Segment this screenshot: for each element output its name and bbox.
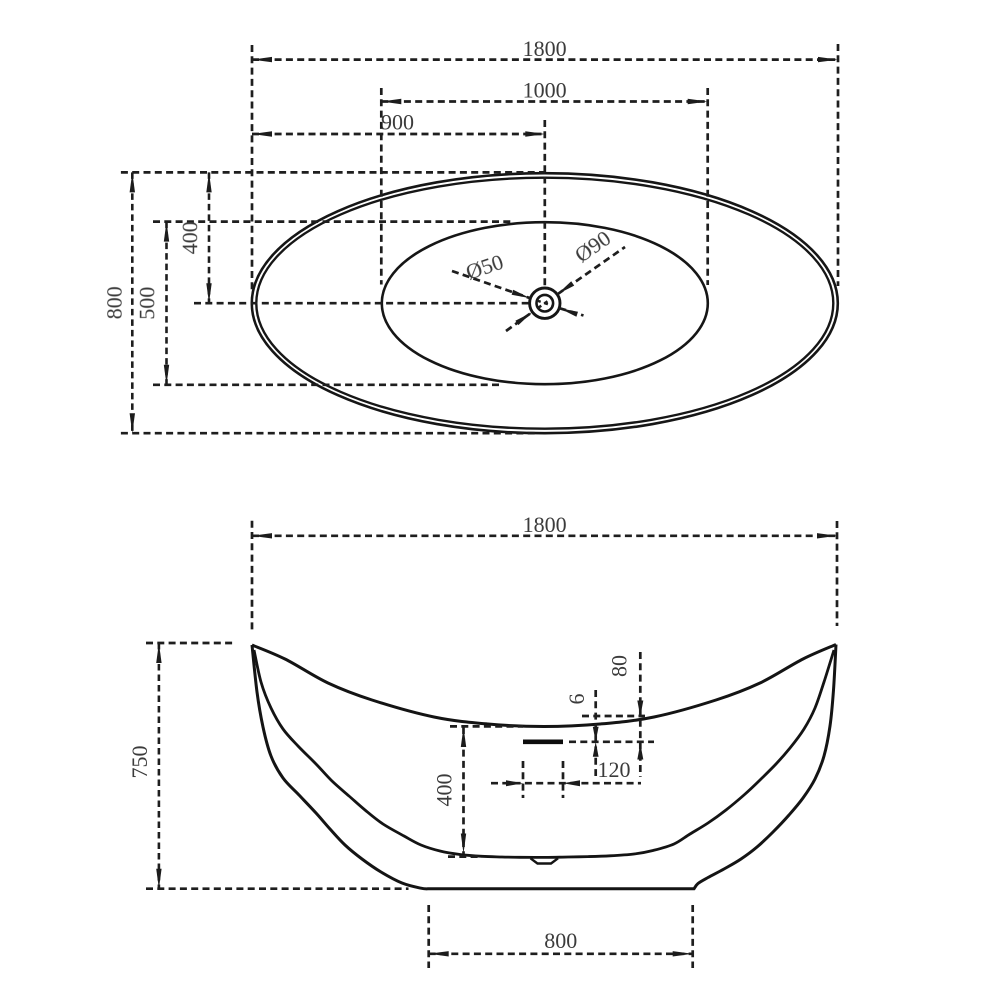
svg-text:800: 800 xyxy=(102,286,127,319)
svg-text:1000: 1000 xyxy=(523,78,567,103)
svg-text:750: 750 xyxy=(127,746,152,779)
svg-text:6: 6 xyxy=(564,694,589,705)
svg-text:400: 400 xyxy=(432,774,457,807)
svg-text:900: 900 xyxy=(381,109,414,134)
svg-text:Ø50: Ø50 xyxy=(463,249,507,285)
svg-text:1800: 1800 xyxy=(523,512,567,537)
svg-text:Ø90: Ø90 xyxy=(570,225,615,267)
svg-text:80: 80 xyxy=(607,655,632,677)
svg-text:800: 800 xyxy=(544,928,577,953)
svg-text:400: 400 xyxy=(177,221,202,254)
svg-text:1800: 1800 xyxy=(523,36,567,61)
svg-text:500: 500 xyxy=(135,287,160,320)
svg-text:120: 120 xyxy=(597,757,630,782)
